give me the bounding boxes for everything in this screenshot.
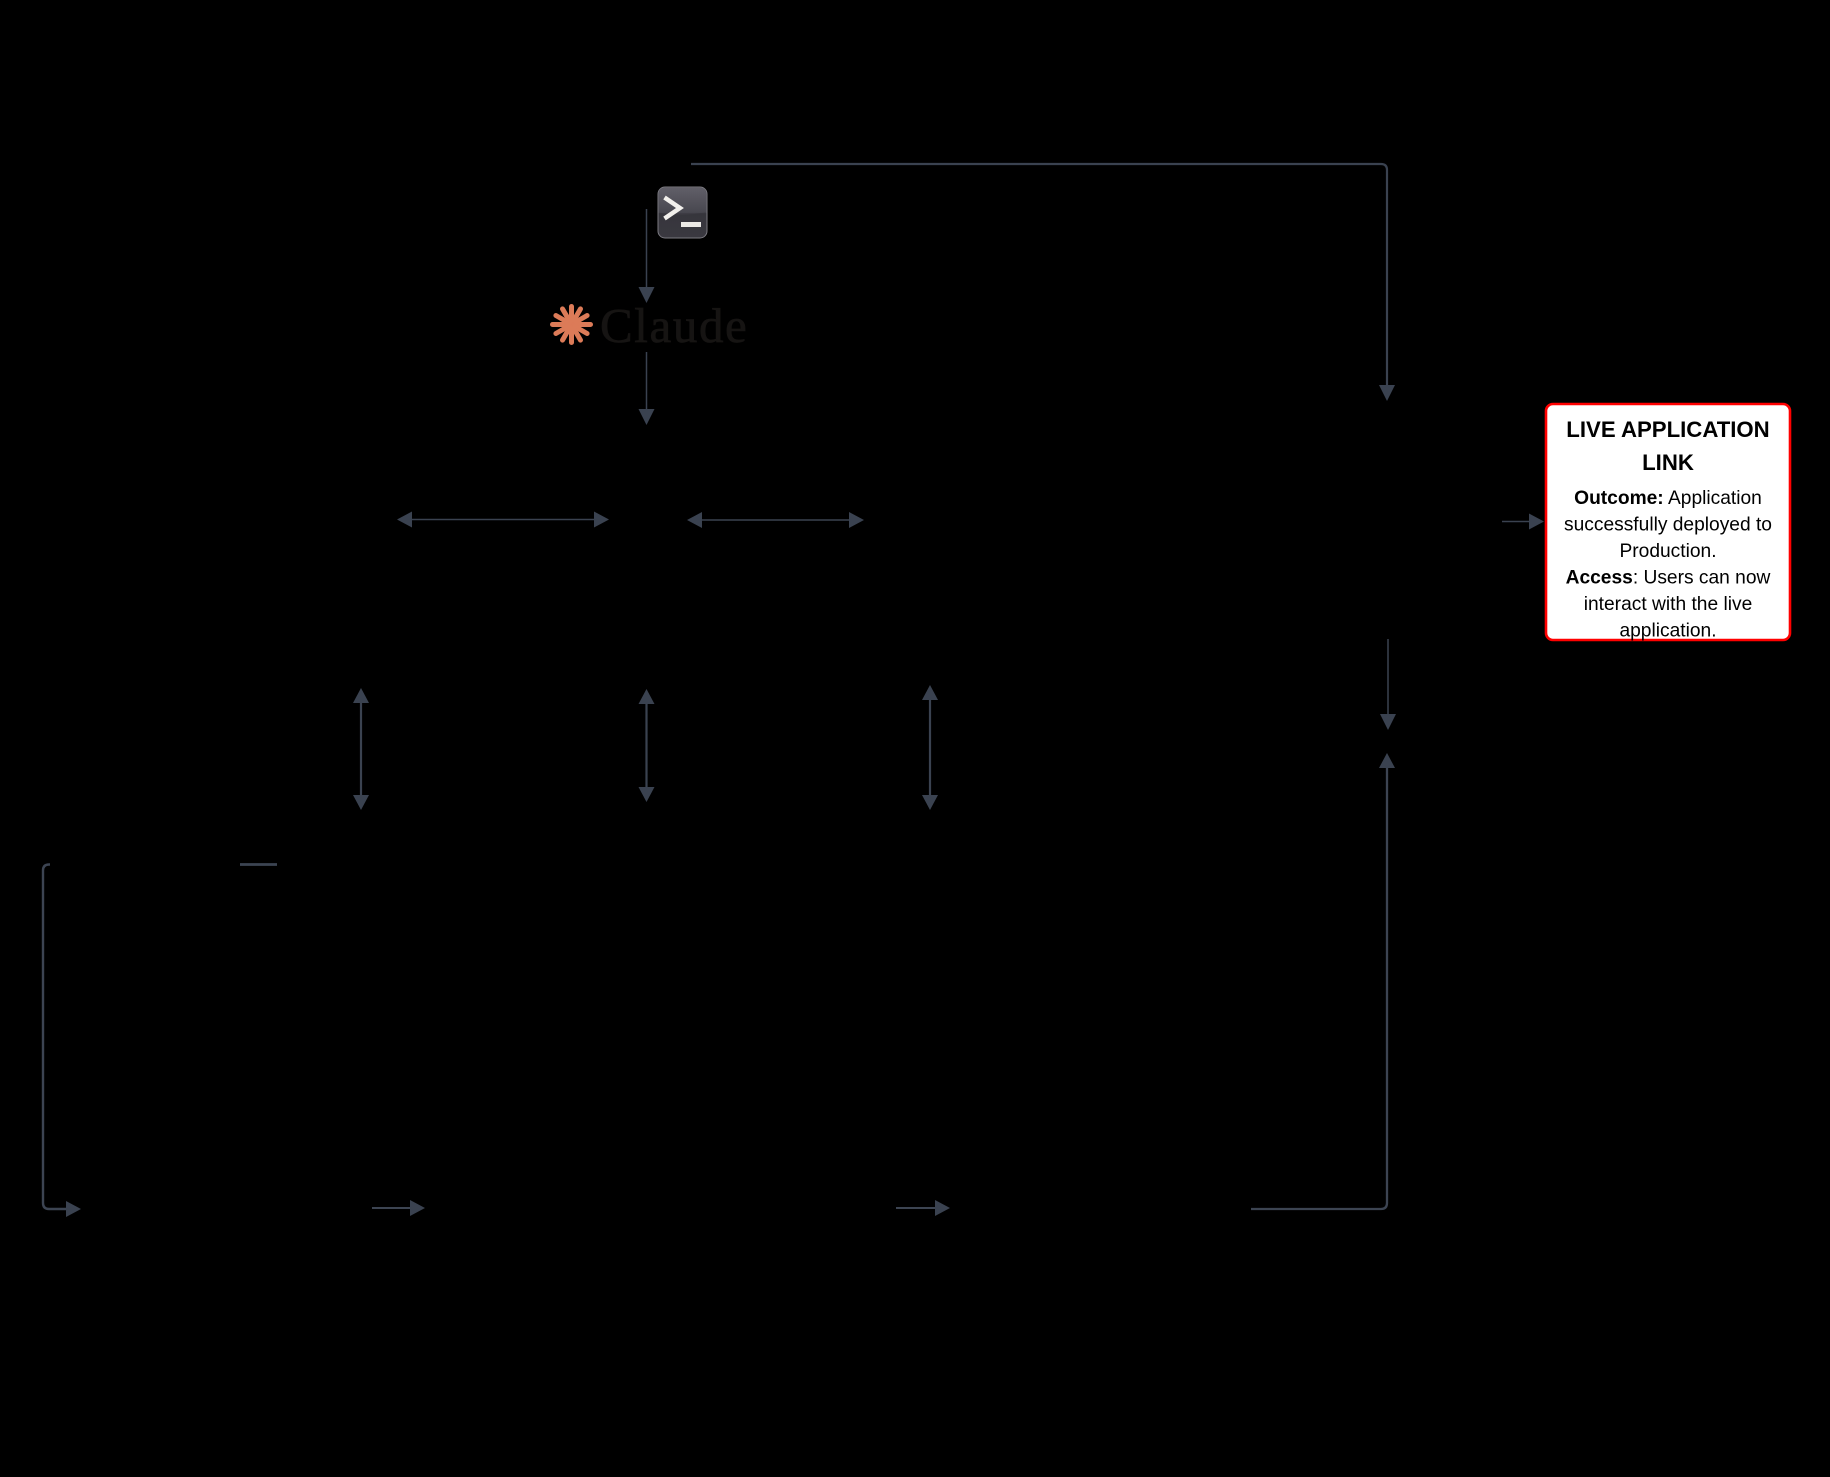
svg-text:Production.: Production. <box>1619 541 1716 562</box>
svg-text:LINK: LINK <box>1642 450 1694 475</box>
svg-text:Access: Users can now: Access: Users can now <box>1566 568 1771 589</box>
svg-text:LIVE APPLICATION: LIVE APPLICATION <box>1566 417 1769 442</box>
svg-text:Claude: Claude <box>600 298 748 353</box>
svg-text:successfully deployed to: successfully deployed to <box>1564 515 1772 536</box>
svg-text:application.: application. <box>1619 621 1716 642</box>
svg-text:Outcome: Application: Outcome: Application <box>1574 488 1762 509</box>
svg-text:interact with the live: interact with the live <box>1584 594 1753 615</box>
